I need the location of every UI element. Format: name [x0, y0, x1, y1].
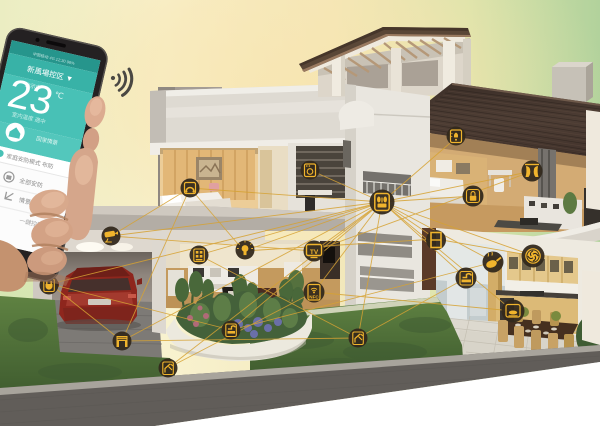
- svg-text:NFC: NFC: [309, 295, 319, 300]
- svg-text:TV: TV: [310, 249, 319, 256]
